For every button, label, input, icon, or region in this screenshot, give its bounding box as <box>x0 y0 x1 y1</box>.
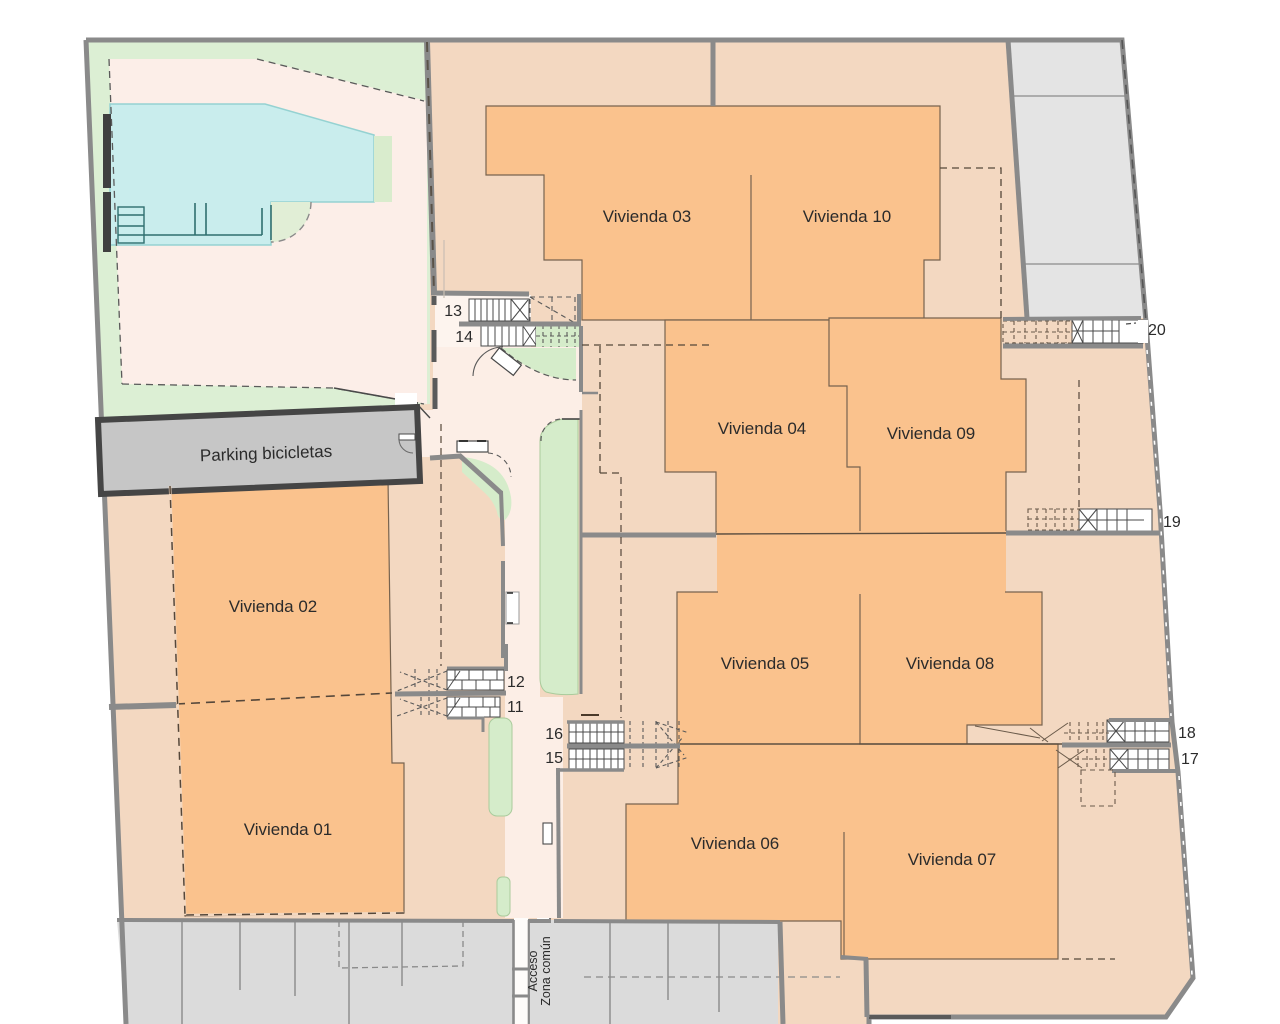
svg-text:Vivienda 03: Vivienda 03 <box>603 207 692 226</box>
svg-text:13: 13 <box>444 303 462 320</box>
svg-text:Zona común: Zona común <box>539 936 553 1006</box>
svg-text:20: 20 <box>1148 322 1166 339</box>
svg-text:Vivienda 09: Vivienda 09 <box>887 424 976 443</box>
svg-text:14: 14 <box>455 329 473 346</box>
svg-text:15: 15 <box>545 750 563 767</box>
svg-text:Vivienda 01: Vivienda 01 <box>244 820 333 839</box>
svg-text:Vivienda 02: Vivienda 02 <box>229 597 318 616</box>
svg-text:Vivienda 05: Vivienda 05 <box>721 654 810 673</box>
svg-text:Acceso: Acceso <box>526 950 540 991</box>
svg-text:Vivienda 04: Vivienda 04 <box>718 419 807 438</box>
svg-text:Vivienda 08: Vivienda 08 <box>906 654 995 673</box>
svg-text:19: 19 <box>1163 514 1181 531</box>
svg-text:18: 18 <box>1178 725 1196 742</box>
svg-text:17: 17 <box>1181 751 1199 768</box>
svg-text:Vivienda 10: Vivienda 10 <box>803 207 892 226</box>
svg-text:Vivienda 07: Vivienda 07 <box>908 850 997 869</box>
svg-text:Vivienda 06: Vivienda 06 <box>691 834 780 853</box>
svg-text:12: 12 <box>507 674 525 691</box>
svg-text:11: 11 <box>507 699 524 716</box>
svg-text:16: 16 <box>545 726 563 743</box>
